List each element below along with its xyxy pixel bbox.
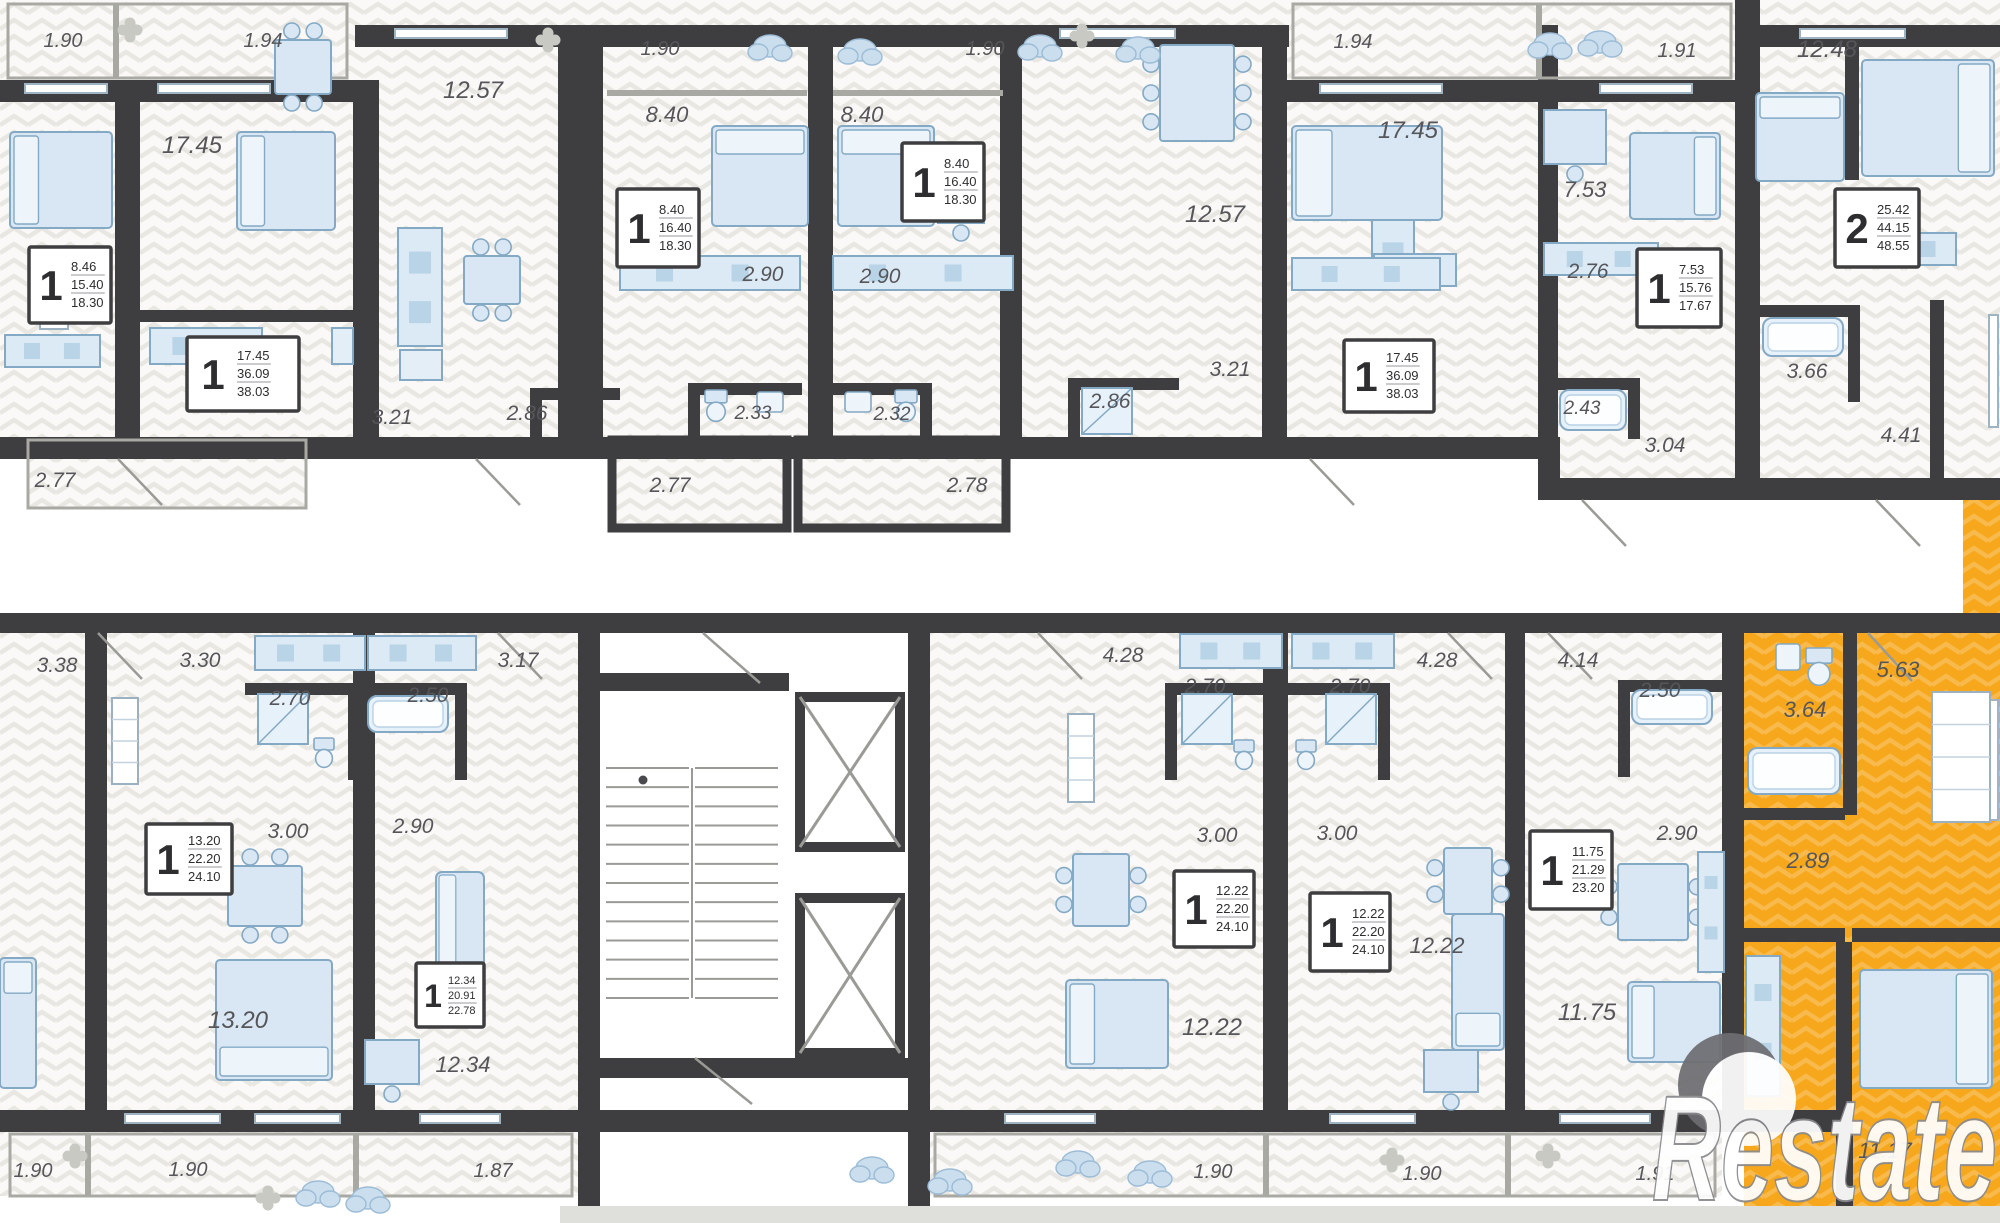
wall — [1263, 633, 1288, 1110]
stair-start-dot — [639, 776, 648, 785]
wall — [578, 1058, 930, 1078]
wall — [908, 613, 930, 1110]
window — [395, 29, 507, 38]
unit-top-f[interactable] — [1538, 45, 1753, 500]
unit-hotspots-layer — [0, 45, 2000, 1223]
unit-selected[interactable] — [1722, 613, 2000, 1223]
wall — [908, 1078, 930, 1223]
unit-bottom-a[interactable] — [0, 633, 85, 1196]
unit-top-studio-left[interactable] — [605, 45, 833, 530]
unit-bottom-d[interactable] — [930, 633, 1263, 1196]
flower-icon — [543, 35, 554, 46]
unit-top-studio-right[interactable] — [833, 45, 1022, 530]
plant-icon — [874, 1167, 894, 1183]
balcony-rail-divider — [85, 1134, 91, 1196]
balcony-rail-divider — [353, 1134, 359, 1196]
unit-top-a[interactable] — [0, 45, 140, 459]
wall — [0, 613, 930, 633]
chair-icon — [284, 23, 300, 39]
unit-top-2room[interactable] — [1753, 45, 2000, 500]
chair-icon — [306, 23, 322, 39]
balcony-rail-divider — [1263, 1134, 1269, 1196]
room-area-label: 2.77 — [34, 469, 77, 492]
unit-bottom-e[interactable] — [1288, 633, 1505, 1196]
flower-icon — [125, 25, 136, 36]
wall — [578, 613, 600, 1110]
plant-icon — [850, 1166, 870, 1182]
wall — [85, 633, 107, 1110]
unit-bottom-f[interactable] — [1505, 633, 1722, 1196]
unit-top-b[interactable] — [140, 45, 605, 459]
unit-bottom-b[interactable] — [107, 633, 353, 1196]
unit-bottom-c[interactable] — [375, 633, 578, 1196]
unit-top-e[interactable] — [1022, 45, 1538, 459]
selected-apartment-texture — [1963, 490, 2000, 613]
flower-icon — [1077, 31, 1088, 42]
corridor-floor — [1558, 500, 2000, 613]
plant-icon — [370, 1197, 390, 1213]
floor-plan-page: 1.901.9412.5717.451.908.408.401.902.902.… — [0, 0, 2000, 1223]
floor-plan-drawing: 1.901.9412.5717.451.908.408.401.902.902.… — [0, 0, 2000, 1223]
plant-icon — [346, 1196, 366, 1212]
corridor-floor — [600, 1078, 908, 1223]
wall — [578, 1078, 600, 1223]
